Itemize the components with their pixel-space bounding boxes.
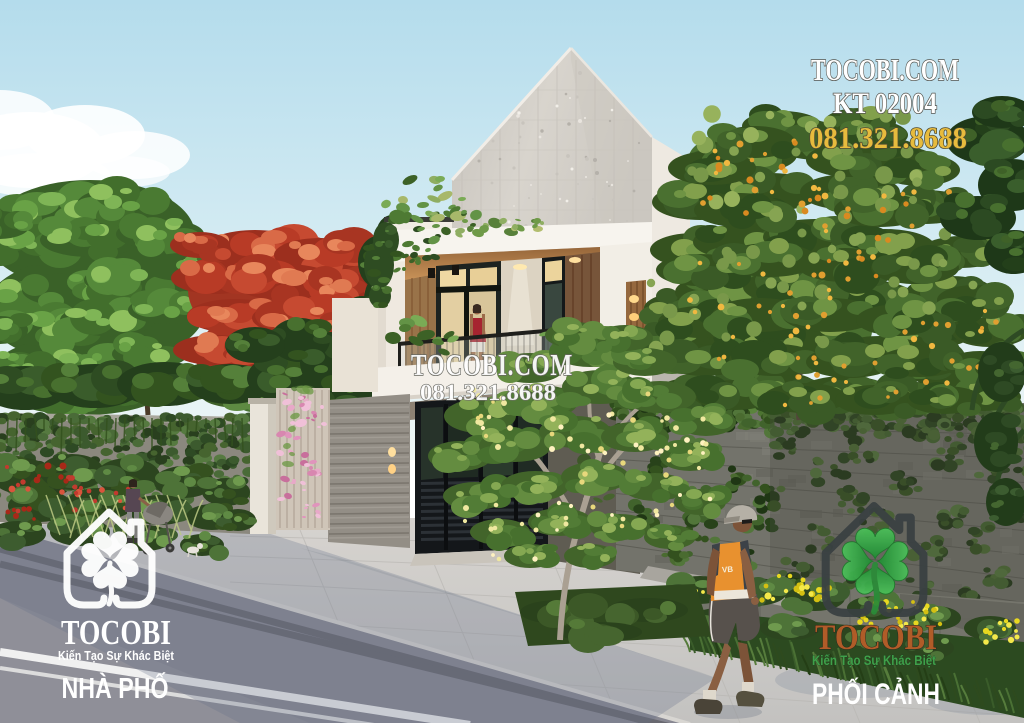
svg-text:TOCOBI: TOCOBI xyxy=(815,617,937,657)
svg-text:NHÀ PHỐ: NHÀ PHỐ xyxy=(62,671,169,705)
svg-text:TOCOBI.COM: TOCOBI.COM xyxy=(811,52,959,87)
svg-text:VB: VB xyxy=(722,565,734,575)
svg-text:081.321.8688: 081.321.8688 xyxy=(420,380,556,405)
svg-text:PHỐI CẢNH: PHỐI CẢNH xyxy=(812,677,940,711)
svg-text:Kiến Tạo Sự Khác Biệt: Kiến Tạo Sự Khác Biệt xyxy=(812,653,936,668)
svg-text:081.321.8688: 081.321.8688 xyxy=(809,120,967,155)
svg-text:Kiến Tạo Sự Khác Biệt: Kiến Tạo Sự Khác Biệt xyxy=(58,648,175,663)
svg-text:TOCOBI: TOCOBI xyxy=(61,613,171,652)
svg-text:KT 02004: KT 02004 xyxy=(833,87,937,120)
svg-text:TOCOBI.COM: TOCOBI.COM xyxy=(411,347,573,382)
